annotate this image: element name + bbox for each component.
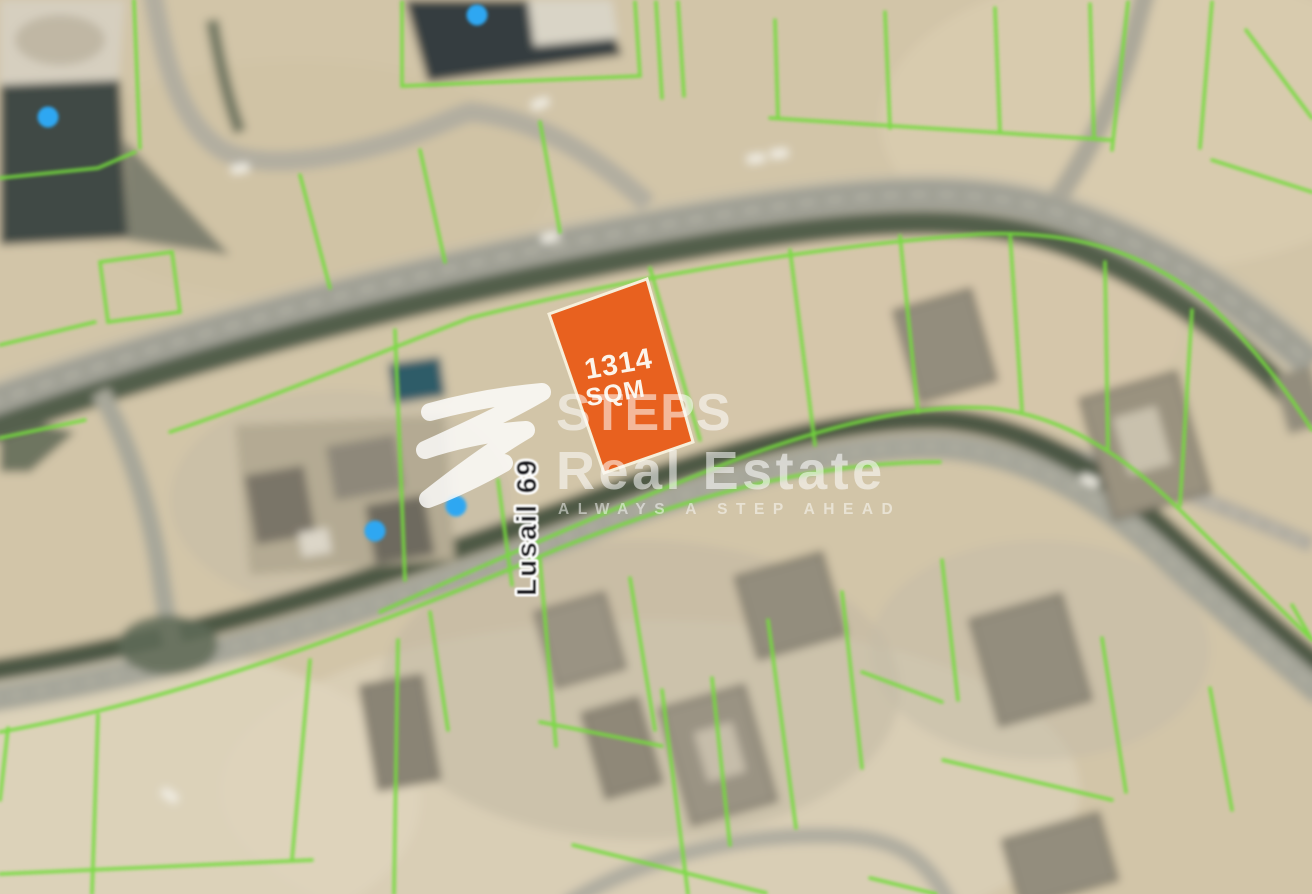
- watermark-tagline: ALWAYS A STEP AHEAD: [558, 501, 901, 518]
- location-dot-icon: [467, 5, 488, 26]
- satellite-map: 1314 SQM Lusail 69 STEPS Real Estate ALW…: [0, 0, 1312, 894]
- road-name-label: Lusail 69: [511, 458, 542, 596]
- location-dot-icon: [38, 107, 59, 128]
- location-dot-icon: [365, 521, 386, 542]
- watermark-brand-line2: Real Estate: [556, 441, 886, 501]
- road-name-text: Lusail 69: [511, 458, 542, 596]
- watermark-brand-line1: STEPS: [556, 384, 732, 442]
- satellite-map-image: 1314 SQM Lusail 69 STEPS Real Estate ALW…: [0, 0, 1312, 894]
